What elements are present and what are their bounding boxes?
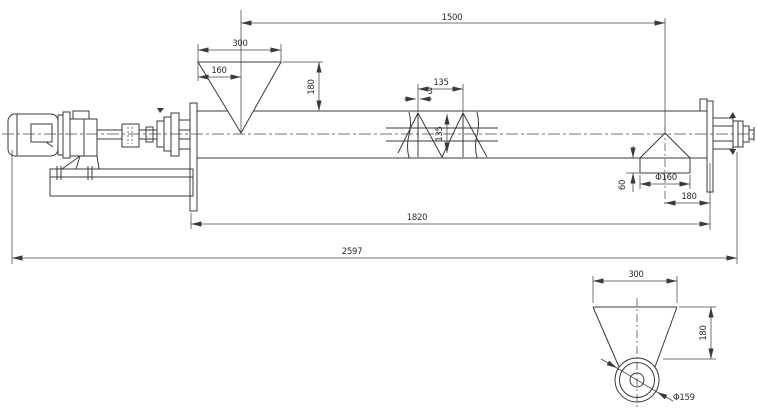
mounting-flange-left [179, 103, 197, 211]
dim-hopper-offset: 160 [211, 66, 226, 76]
dim-trough-length: 1820 [407, 213, 427, 223]
base-frame [50, 156, 193, 196]
dim-spout-diameter: Φ160 [655, 173, 677, 183]
dim-spout-drop: 60 [618, 180, 628, 190]
screw-conveyor-drawing: 1500 300 160 180 135 3 135 60 [0, 0, 757, 412]
motor-body [8, 114, 58, 156]
dim-hopper-height: 180 [307, 79, 317, 94]
drawing-canvas: 1500 300 160 180 135 3 135 60 [0, 0, 757, 412]
dim-hopper-width: 300 [232, 39, 247, 49]
motor-nameplate [31, 124, 52, 142]
dim-flight-thickness: 3 [427, 87, 432, 97]
coupling [122, 124, 139, 147]
detail-dim-height: 180 [699, 325, 709, 340]
drive-unit [8, 108, 179, 158]
dim-screw-diameter: 135 [435, 126, 445, 141]
detail-view: 300 180 Φ159 [593, 270, 716, 410]
detail-dim-pipe-diameter: Φ159 [673, 393, 695, 403]
conveyor-tube [197, 111, 707, 158]
dim-overall-top: 1500 [442, 13, 462, 23]
dim-spout-to-end: 180 [681, 192, 696, 202]
end-bearing [700, 99, 754, 192]
dim-overall-length: 2597 [342, 247, 362, 257]
detail-dim-width: 300 [628, 270, 643, 280]
dim-screw-pitch: 135 [433, 78, 448, 88]
